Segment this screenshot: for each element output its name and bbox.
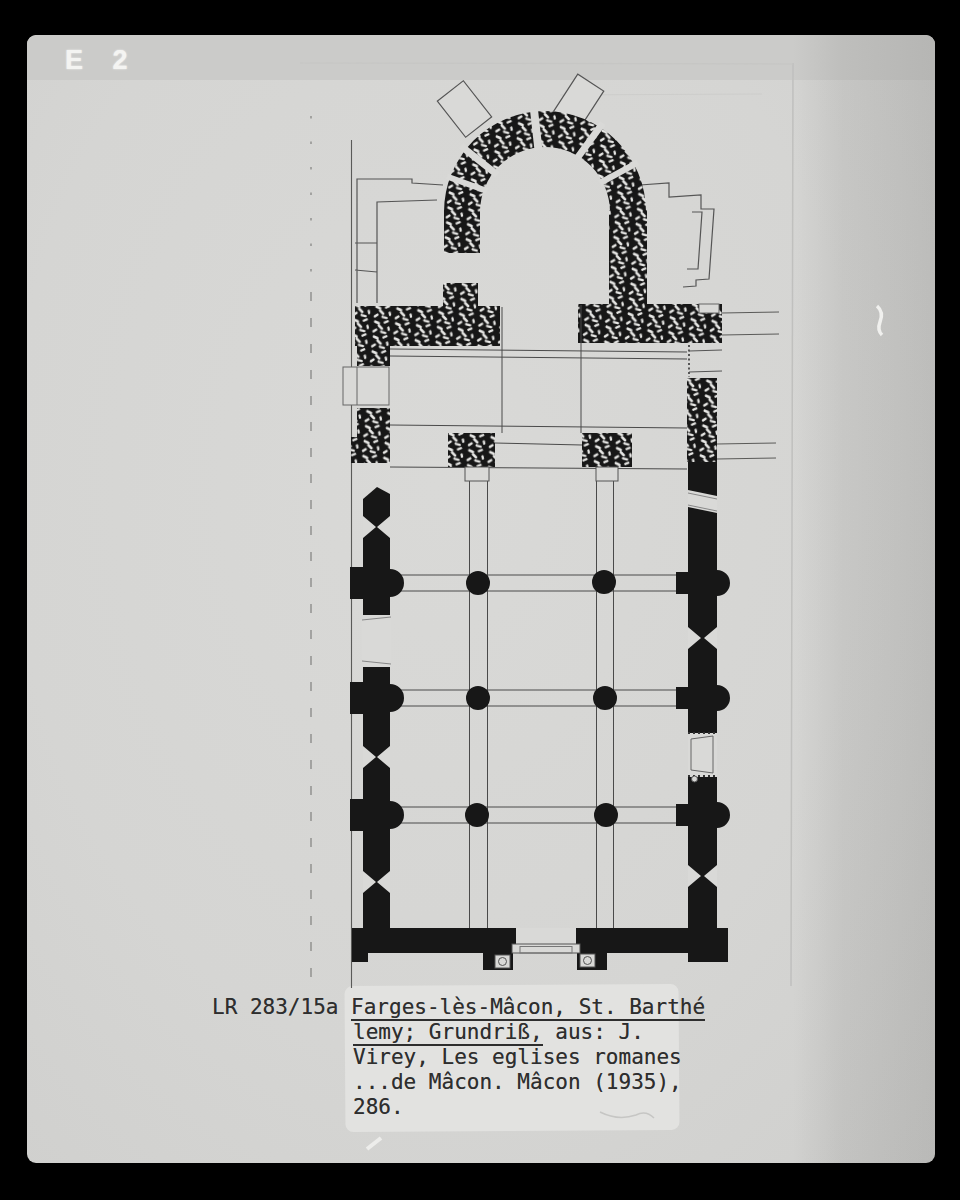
caption-inventory-number: LR 283/15a: [212, 995, 351, 1019]
archive-mark: E 2: [65, 45, 139, 76]
caption-title-underlined: Farges-lès-Mâcon, St. Barthé: [351, 995, 705, 1021]
caption-line-2: lemy; Grundriß, aus: J.: [353, 1020, 644, 1045]
caption-line-3: Virey, Les eglises romanes: [353, 1045, 682, 1070]
archive-photograph-page: { "photo_label": { "text": "E 2" }, "cap…: [0, 0, 960, 1200]
caption-line-5: 286.: [353, 1095, 404, 1120]
caption-source-intro: aus: J.: [543, 1020, 644, 1044]
caption-line-4: ...de Mâcon. Mâcon (1935),: [353, 1070, 682, 1095]
caption-title-underlined-2: lemy; Grundriß,: [353, 1020, 543, 1046]
caption-line-1: LR 283/15a Farges-lès-Mâcon, St. Barthé: [212, 995, 705, 1020]
photo-print: E 2: [27, 35, 935, 1163]
sheet-edge-shadow: [793, 35, 935, 1163]
